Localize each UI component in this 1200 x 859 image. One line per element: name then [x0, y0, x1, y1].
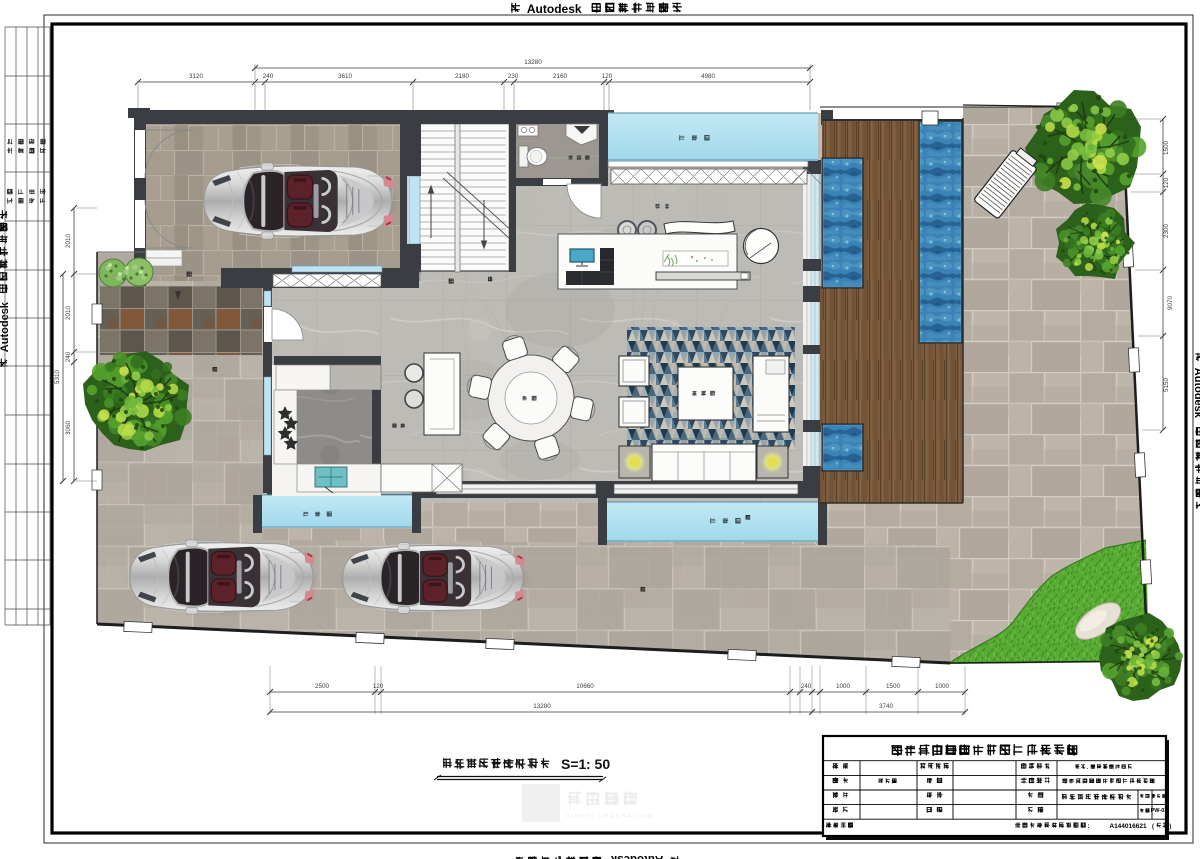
svg-text:1000: 1000 [935, 683, 950, 690]
svg-text:2160: 2160 [553, 73, 568, 80]
svg-text:(: ( [1152, 824, 1154, 830]
svg-text:1000: 1000 [836, 683, 851, 690]
svg-text:Autodesk: Autodesk [0, 301, 11, 352]
svg-text:120: 120 [373, 683, 384, 690]
svg-text:: 50: : 50 [586, 756, 610, 772]
svg-text:S=1: S=1 [561, 756, 587, 772]
svg-text:2500: 2500 [315, 683, 330, 690]
svg-text:120: 120 [602, 73, 613, 80]
svg-text:240: 240 [65, 351, 72, 362]
svg-text:9070: 9070 [1167, 296, 1174, 311]
svg-text:1500: 1500 [886, 683, 901, 690]
svg-text::: : [1087, 823, 1089, 830]
svg-text:Autodesk: Autodesk [610, 853, 663, 859]
svg-text:5150: 5150 [1163, 378, 1170, 393]
svg-text:3740: 3740 [879, 703, 894, 710]
svg-text:13280: 13280 [524, 59, 542, 66]
svg-text:240: 240 [801, 683, 812, 690]
svg-text:120: 120 [1163, 177, 1170, 188]
svg-text:XINGYI DECORATION: XINGYI DECORATION [566, 814, 653, 820]
svg-text:10660: 10660 [576, 683, 594, 690]
svg-text:): ) [1169, 824, 1171, 830]
svg-text:2010: 2010 [65, 306, 72, 321]
svg-text:3610: 3610 [338, 73, 353, 80]
svg-text:3060: 3060 [65, 421, 72, 436]
svg-text:2180: 2180 [455, 73, 470, 80]
svg-text:5310: 5310 [54, 370, 61, 385]
svg-text:1500: 1500 [1163, 141, 1170, 156]
svg-text:2010: 2010 [65, 234, 72, 249]
svg-text:Autodesk: Autodesk [1192, 368, 1200, 419]
svg-text:13280: 13280 [533, 703, 551, 710]
svg-text:240: 240 [263, 73, 274, 80]
svg-text:Autodesk: Autodesk [527, 2, 582, 16]
svg-text:PW-01: PW-01 [1151, 808, 1168, 814]
svg-text:4980: 4980 [701, 73, 716, 80]
svg-text:230: 230 [508, 73, 519, 80]
svg-text:3120: 3120 [189, 73, 204, 80]
svg-text:2300: 2300 [1163, 224, 1170, 239]
svg-text:A144016621: A144016621 [1109, 823, 1147, 830]
